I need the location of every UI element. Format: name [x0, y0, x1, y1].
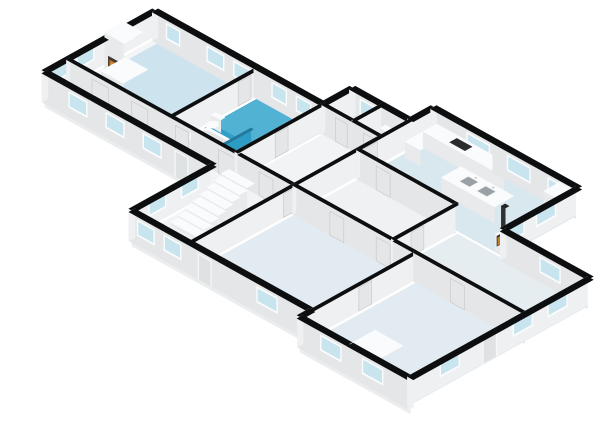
floorplan-3d-canvas: [0, 0, 600, 424]
floorplan-viewport: [0, 0, 600, 424]
